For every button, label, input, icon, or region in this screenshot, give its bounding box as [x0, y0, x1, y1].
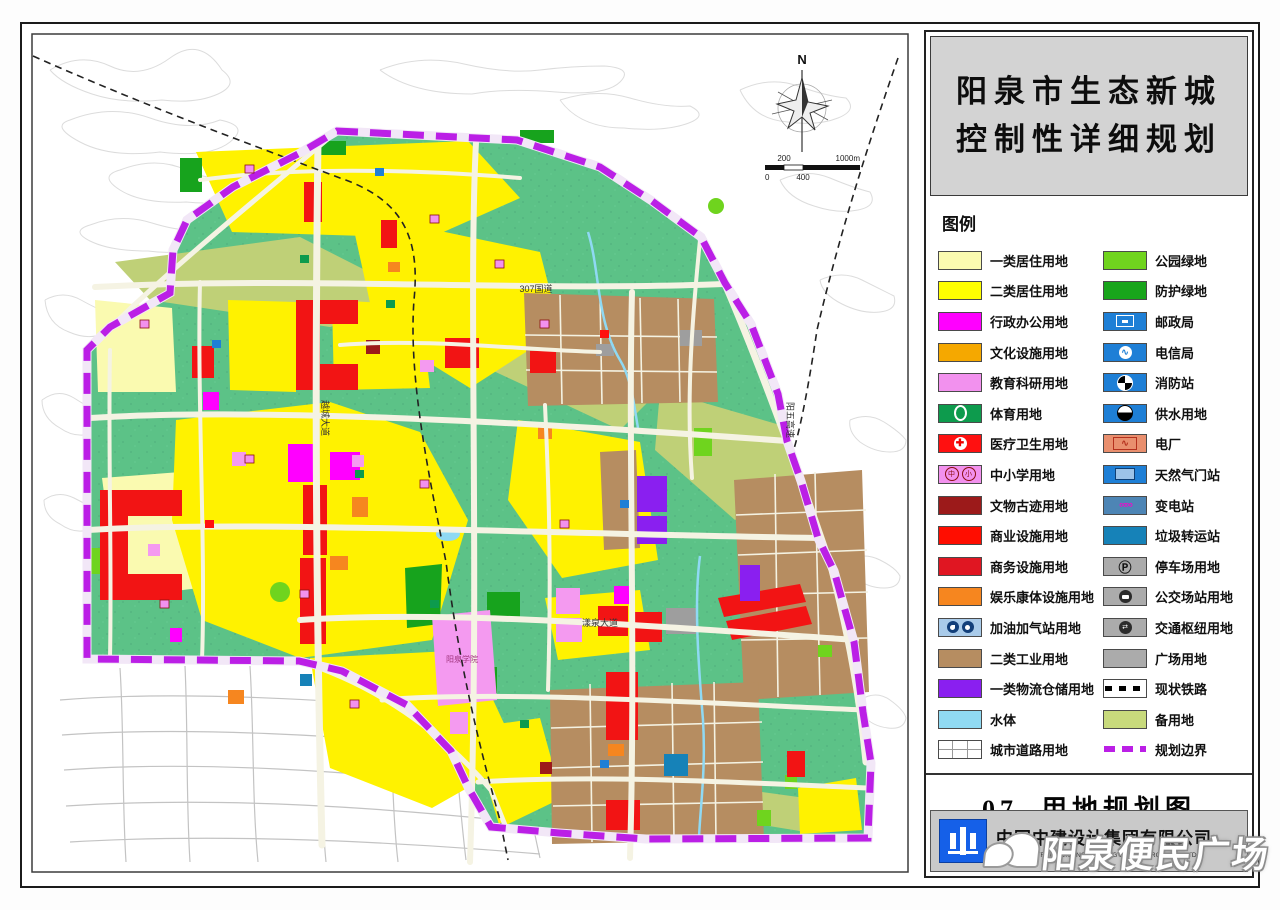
legend-item-right-13: 广场用地	[1103, 643, 1246, 674]
legend-label: 交通枢纽用地	[1155, 618, 1233, 637]
legend-item-left-8: 文物古迹用地	[938, 490, 1103, 521]
legend-item-left-1: 二类居住用地	[938, 276, 1103, 307]
legend-item-left-11: 娱乐康体设施用地	[938, 582, 1103, 613]
gas-gate-icon	[1103, 465, 1147, 484]
legend-swatch	[938, 649, 982, 668]
legend-label: 公园绿地	[1155, 251, 1207, 270]
legend-item-right-3: ∿电信局	[1103, 337, 1246, 368]
legend-label: 防护绿地	[1155, 281, 1207, 300]
college-label: 阳泉学院	[446, 654, 478, 664]
legend-item-left-7: 中小中小学用地	[938, 459, 1103, 490]
legend-item-left-12: 加油加气站用地	[938, 612, 1103, 643]
legend-item-right-2: 邮政局	[1103, 306, 1246, 337]
substation-icon: ∞∞	[1103, 496, 1147, 515]
legend-label: 水体	[990, 710, 1016, 729]
legend-label: 商务设施用地	[990, 557, 1068, 576]
legend: 一类居住用地二类居住用地行政办公用地文化设施用地教育科研用地体育用地✚医疗卫生用…	[938, 245, 1246, 765]
bus-icon	[1103, 587, 1147, 606]
legend-label: 天然气门站	[1155, 465, 1220, 484]
legend-label: 消防站	[1155, 373, 1194, 392]
legend-swatch	[1103, 251, 1147, 270]
north-label: N	[797, 52, 806, 67]
legend-item-left-10: 商务设施用地	[938, 551, 1103, 582]
legend-swatch	[938, 526, 982, 545]
legend-item-left-6: ✚医疗卫生用地	[938, 429, 1103, 460]
svg-text:1000m: 1000m	[836, 154, 861, 163]
legend-label: 一类物流仓储用地	[990, 679, 1094, 698]
post-icon	[1103, 312, 1147, 331]
watermark-text: 阳泉便民广场	[1039, 826, 1272, 878]
legend-label: 备用地	[1155, 710, 1194, 729]
legend-label: 商业设施用地	[990, 526, 1068, 545]
stadium-ring-icon	[938, 404, 982, 423]
road-label-g307: 307国道	[519, 283, 552, 294]
legend-item-right-6: ∿电厂	[1103, 429, 1246, 460]
legend-label: 教育科研用地	[990, 373, 1068, 392]
legend-label: 广场用地	[1155, 649, 1207, 668]
railway-icon	[1103, 679, 1147, 698]
info-panel: 阳泉市生态新城 控制性详细规划 图例 一类居住用地二类居住用地行政办公用地文化设…	[924, 30, 1254, 878]
legend-item-right-10: Ⓟ停车场用地	[1103, 551, 1246, 582]
plan-title: 阳泉市生态新城 控制性详细规划	[930, 36, 1248, 196]
medical-cross-icon: ✚	[938, 434, 982, 453]
legend-label: 公交场站用地	[1155, 587, 1233, 606]
legend-item-right-16: 规划边界	[1103, 735, 1246, 766]
legend-swatch	[938, 557, 982, 576]
legend-label: 电厂	[1155, 434, 1181, 453]
legend-item-right-7: 天然气门站	[1103, 459, 1246, 490]
legend-item-left-2: 行政办公用地	[938, 306, 1103, 337]
road-label-yuecheng: 越城大道	[320, 400, 331, 436]
legend-item-left-14: 一类物流仓储用地	[938, 673, 1103, 704]
legend-column-left: 一类居住用地二类居住用地行政办公用地文化设施用地教育科研用地体育用地✚医疗卫生用…	[938, 245, 1103, 765]
legend-label: 变电站	[1155, 496, 1194, 515]
legend-item-right-5: 供水用地	[1103, 398, 1246, 429]
legend-swatch	[938, 496, 982, 515]
plan-title-line1: 阳泉市生态新城	[956, 68, 1222, 116]
legend-label: 停车场用地	[1155, 557, 1220, 576]
legend-label: 二类居住用地	[990, 281, 1068, 300]
company-logo	[939, 819, 987, 863]
legend-label: 医疗卫生用地	[990, 434, 1068, 453]
legend-item-left-9: 商业设施用地	[938, 520, 1103, 551]
legend-swatch	[1103, 649, 1147, 668]
svg-text:400: 400	[796, 173, 810, 182]
power-plant-icon: ∿	[1103, 434, 1147, 453]
legend-label: 中小学用地	[990, 465, 1055, 484]
legend-swatch	[938, 710, 982, 729]
school-circles-icon: 中小	[938, 465, 982, 484]
legend-item-right-0: 公园绿地	[1103, 245, 1246, 276]
svg-text:200: 200	[777, 154, 791, 163]
legend-item-left-4: 教育科研用地	[938, 367, 1103, 398]
road-grid-icon	[938, 740, 982, 759]
legend-label: 二类工业用地	[990, 649, 1068, 668]
legend-item-right-12: ⇄交通枢纽用地	[1103, 612, 1246, 643]
parking-icon: Ⓟ	[1103, 557, 1147, 576]
svg-text:0: 0	[765, 173, 770, 182]
fire-station-icon	[1103, 373, 1147, 392]
legend-swatch	[938, 281, 982, 300]
legend-label: 体育用地	[990, 404, 1042, 423]
legend-item-right-9: 垃圾转运站	[1103, 520, 1246, 551]
legend-item-left-3: 文化设施用地	[938, 337, 1103, 368]
telecom-icon: ∿	[1103, 343, 1147, 362]
panel-divider	[926, 773, 1252, 775]
water-supply-icon	[1103, 404, 1147, 423]
legend-label: 垃圾转运站	[1155, 526, 1220, 545]
legend-swatch	[938, 312, 982, 331]
transport-hub-icon: ⇄	[1103, 618, 1147, 637]
legend-title: 图例	[942, 210, 1252, 235]
legend-item-left-15: 水体	[938, 704, 1103, 735]
watermark: 阳泉便民广场	[981, 826, 1272, 878]
legend-label: 娱乐康体设施用地	[990, 587, 1094, 606]
road-label-yangquan-ave: 漾泉大道	[582, 617, 618, 628]
boundary-icon	[1103, 740, 1147, 759]
gas-pumps-icon	[938, 618, 982, 637]
road-label-yangwu: 阳五高速	[785, 402, 796, 438]
legend-label: 城市道路用地	[990, 740, 1068, 759]
legend-label: 一类居住用地	[990, 251, 1068, 270]
legend-label: 邮政局	[1155, 312, 1194, 331]
legend-item-left-16: 城市道路用地	[938, 735, 1103, 766]
legend-label: 规划边界	[1155, 740, 1207, 759]
legend-column-right: 公园绿地防护绿地邮政局∿电信局消防站供水用地∿电厂天然气门站∞∞变电站垃圾转运站…	[1103, 245, 1246, 765]
legend-label: 供水用地	[1155, 404, 1207, 423]
legend-swatch	[938, 251, 982, 270]
legend-item-right-15: 备用地	[1103, 704, 1246, 735]
legend-item-left-5: 体育用地	[938, 398, 1103, 429]
legend-swatch	[938, 587, 982, 606]
legend-label: 加油加气站用地	[990, 618, 1081, 637]
legend-swatch	[938, 343, 982, 362]
legend-item-left-13: 二类工业用地	[938, 643, 1103, 674]
legend-label: 电信局	[1155, 343, 1194, 362]
legend-swatch	[938, 373, 982, 392]
legend-item-right-1: 防护绿地	[1103, 276, 1246, 307]
legend-item-right-8: ∞∞变电站	[1103, 490, 1246, 521]
legend-item-left-0: 一类居住用地	[938, 245, 1103, 276]
legend-swatch	[938, 679, 982, 698]
legend-item-right-11: 公交场站用地	[1103, 582, 1246, 613]
legend-label: 文化设施用地	[990, 343, 1068, 362]
legend-label: 行政办公用地	[990, 312, 1068, 331]
legend-swatch	[1103, 526, 1147, 545]
legend-swatch	[1103, 710, 1147, 729]
plan-title-line2: 控制性详细规划	[956, 116, 1222, 164]
wechat-icon	[981, 826, 1044, 878]
legend-item-right-4: 消防站	[1103, 367, 1246, 398]
legend-label: 文物古迹用地	[990, 496, 1068, 515]
legend-label: 现状铁路	[1155, 679, 1207, 698]
legend-swatch	[1103, 281, 1147, 300]
legend-item-right-14: 现状铁路	[1103, 673, 1246, 704]
